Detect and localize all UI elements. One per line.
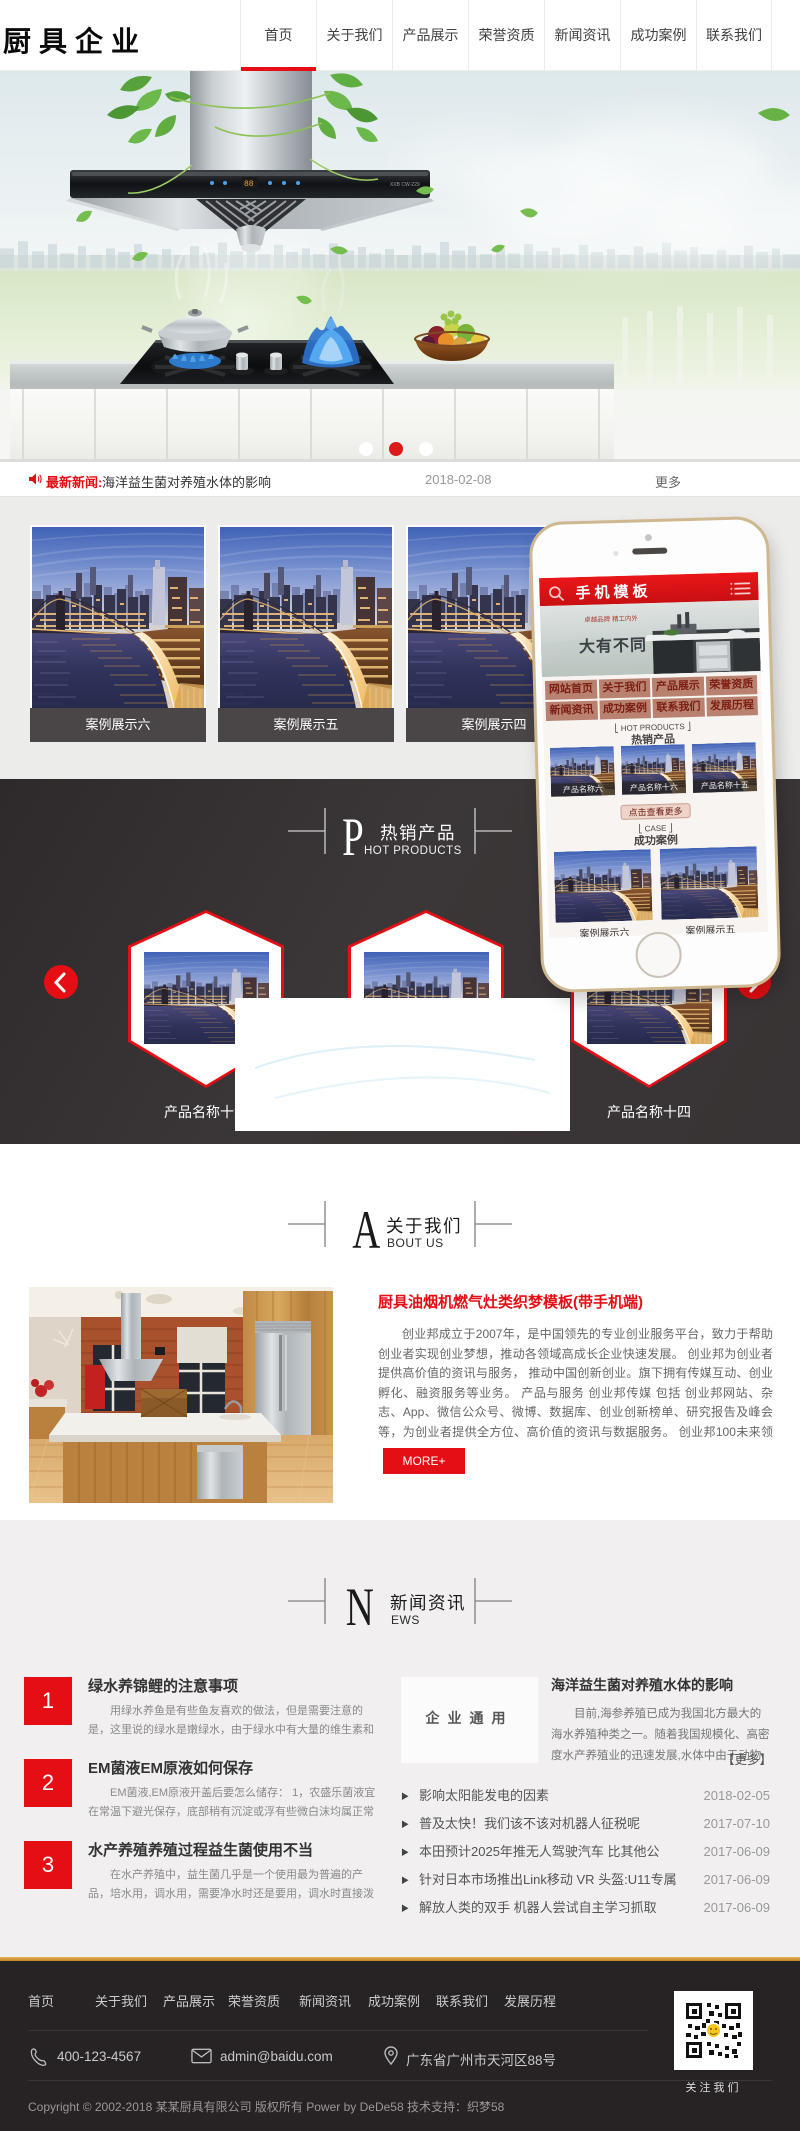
svg-text:BOUT US: BOUT US [387,1236,444,1250]
svg-text:A: A [352,1201,380,1261]
svg-text:P: P [342,808,364,868]
svg-text:EWS: EWS [391,1613,420,1627]
svg-text:XXB CW-229: XXB CW-229 [390,182,420,188]
svg-text:关于我们: 关于我们 [386,1216,462,1236]
svg-text:热销产品: 热销产品 [380,823,456,843]
svg-text:N: N [346,1578,374,1638]
svg-text:HOT PRODUCTS: HOT PRODUCTS [364,845,462,857]
svg-text:88: 88 [244,180,254,189]
svg-text:新闻资讯: 新闻资讯 [390,1593,466,1613]
